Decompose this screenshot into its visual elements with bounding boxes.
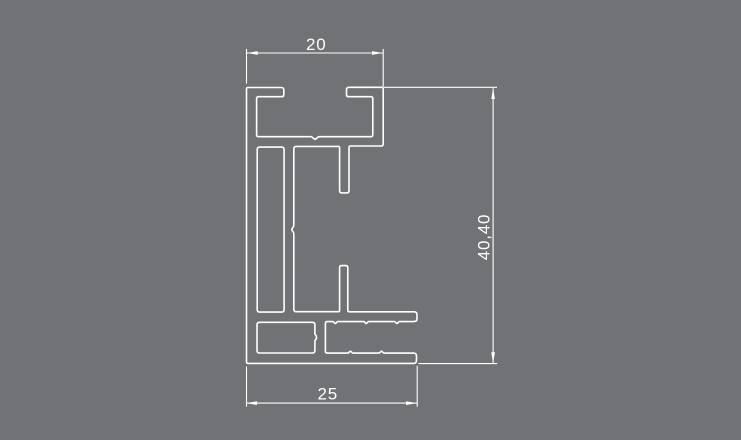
svg-text:25: 25 [318,385,339,404]
svg-text:20: 20 [306,35,327,54]
svg-text:40,40: 40,40 [475,214,494,261]
